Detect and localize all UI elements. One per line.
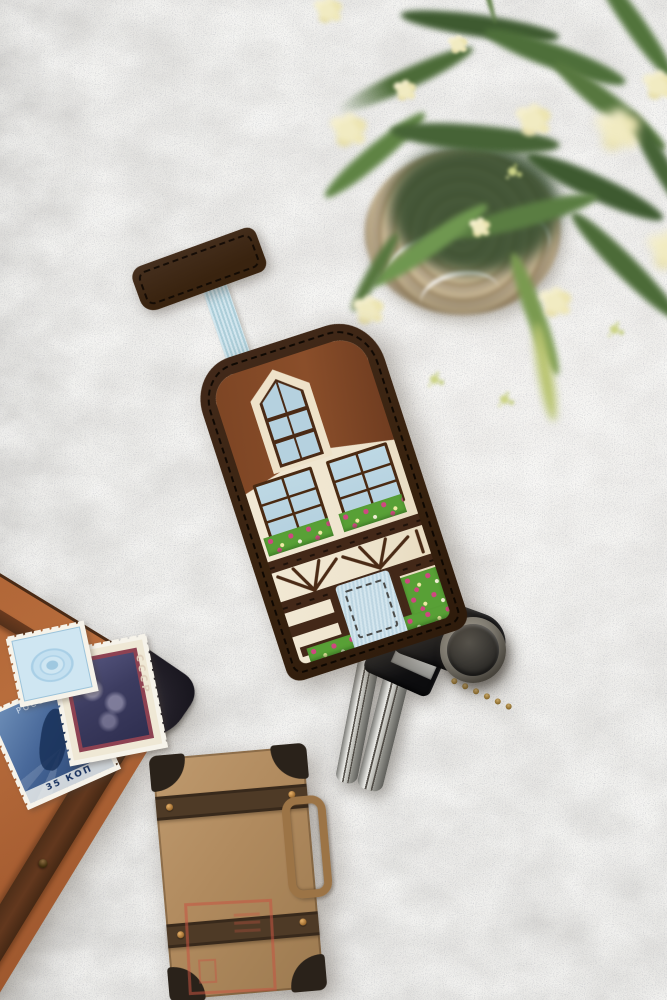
flatlay-photo: РОССІЯ 35 КОП СССР [0, 0, 667, 1000]
fob-face [447, 624, 499, 676]
side-panel-beam [289, 612, 338, 637]
